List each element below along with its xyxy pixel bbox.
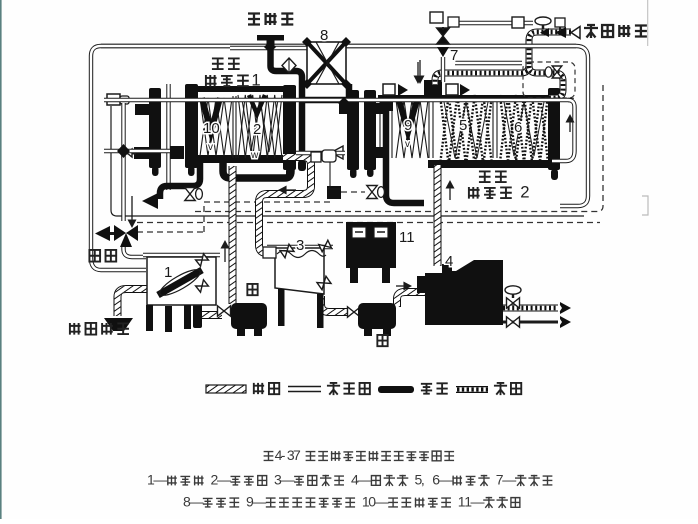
svg-text:9: 9 xyxy=(404,117,412,134)
svg-text:—: — xyxy=(252,494,266,510)
svg-text:—: — xyxy=(502,472,516,488)
svg-text:—: — xyxy=(375,494,389,510)
svg-text:8: 8 xyxy=(320,27,328,44)
svg-text:3: 3 xyxy=(296,237,304,254)
svg-text:6: 6 xyxy=(514,119,522,136)
svg-text:v: v xyxy=(208,142,213,153)
svg-text:-: - xyxy=(281,447,286,463)
svg-text:4: 4 xyxy=(445,253,453,270)
svg-text:11: 11 xyxy=(399,229,415,246)
svg-text:—: — xyxy=(281,472,295,488)
svg-text:10: 10 xyxy=(203,120,220,137)
svg-text:w: w xyxy=(250,150,259,161)
svg-text:—: — xyxy=(439,472,453,488)
svg-text:v: v xyxy=(405,139,410,150)
svg-text:—: — xyxy=(217,472,231,488)
svg-text:,: , xyxy=(421,472,425,488)
svg-text:7: 7 xyxy=(293,447,301,463)
svg-text:7: 7 xyxy=(450,47,458,64)
svg-text:1: 1 xyxy=(164,264,172,281)
svg-text:2: 2 xyxy=(253,121,261,138)
svg-text:—: — xyxy=(189,494,203,510)
svg-text:5: 5 xyxy=(459,117,467,134)
svg-text:1: 1 xyxy=(251,71,260,90)
svg-text:2: 2 xyxy=(520,183,529,202)
svg-text:—: — xyxy=(357,472,371,488)
svg-text:—: — xyxy=(471,494,485,510)
svg-text:—: — xyxy=(153,472,167,488)
